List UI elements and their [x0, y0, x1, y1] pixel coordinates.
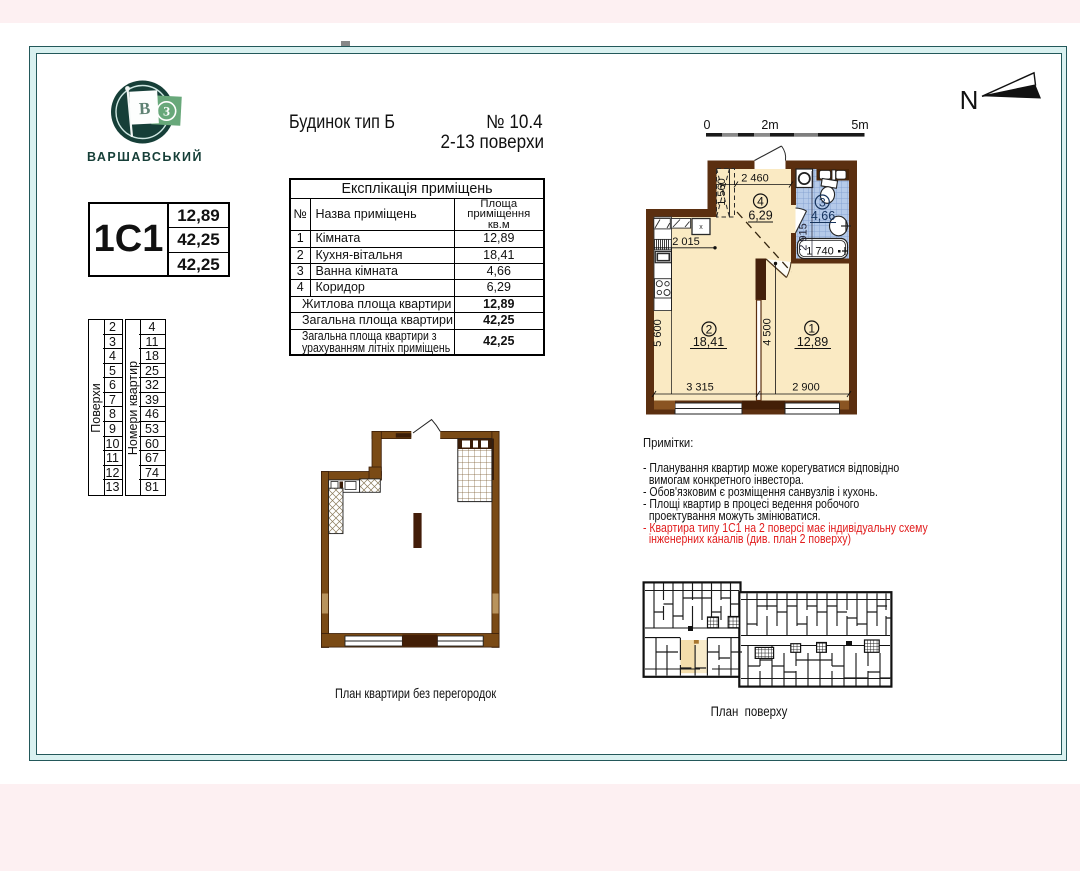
svg-text:5m: 5m	[851, 118, 868, 132]
svg-text:1 560: 1 560	[716, 178, 728, 206]
svg-text:4 500: 4 500	[762, 318, 774, 346]
svg-text:2 460: 2 460	[741, 173, 769, 185]
svg-text:3: 3	[819, 196, 826, 210]
svg-text:2 015: 2 015	[672, 236, 700, 248]
svg-text:1: 1	[808, 322, 815, 336]
svg-text:4,66: 4,66	[811, 209, 835, 223]
svg-text:1 740: 1 740	[806, 246, 834, 258]
svg-text:18,41: 18,41	[693, 335, 724, 349]
svg-text:4: 4	[757, 195, 764, 209]
svg-text:0: 0	[704, 118, 711, 132]
svg-text:З: З	[163, 103, 171, 118]
svg-text:В: В	[138, 99, 150, 119]
svg-text:2 915: 2 915	[798, 223, 810, 251]
svg-text:3 315: 3 315	[686, 382, 714, 394]
svg-text:x: x	[699, 224, 703, 231]
svg-text:2 900: 2 900	[792, 382, 820, 394]
svg-text:N: N	[960, 85, 979, 115]
svg-text:5 600: 5 600	[652, 319, 664, 347]
svg-text:6,29: 6,29	[748, 209, 772, 223]
svg-text:12,89: 12,89	[797, 335, 828, 349]
svg-text:2m: 2m	[761, 118, 778, 132]
